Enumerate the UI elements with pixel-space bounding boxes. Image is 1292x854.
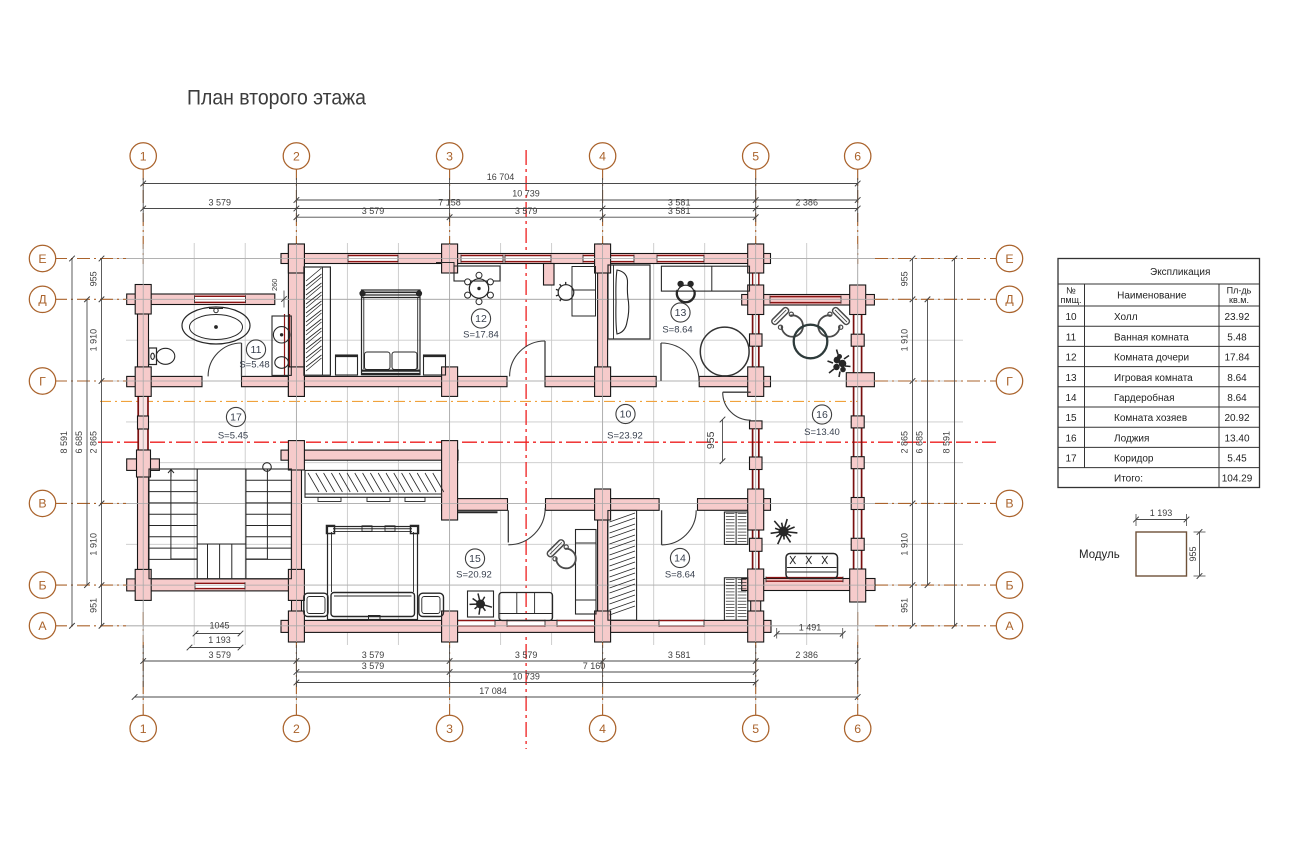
svg-text:2 865: 2 865 <box>89 431 99 454</box>
svg-text:S=17.84: S=17.84 <box>463 330 499 341</box>
svg-text:1 910: 1 910 <box>89 533 99 556</box>
svg-text:4: 4 <box>599 722 606 736</box>
svg-text:5: 5 <box>752 149 759 163</box>
svg-text:Наименование: Наименование <box>1117 291 1187 302</box>
svg-text:11: 11 <box>251 344 262 356</box>
svg-text:Экспликация: Экспликация <box>1150 267 1210 278</box>
svg-text:17: 17 <box>230 412 242 424</box>
svg-text:Е: Е <box>38 252 46 266</box>
svg-text:№: № <box>1066 286 1076 296</box>
svg-text:1 910: 1 910 <box>89 329 99 352</box>
svg-text:6 685: 6 685 <box>915 431 925 454</box>
svg-text:S=5.45: S=5.45 <box>218 431 248 442</box>
svg-text:План второго этажа: План второго этажа <box>187 86 366 110</box>
svg-text:Комната дочери: Комната дочери <box>1114 353 1189 364</box>
svg-text:8.64: 8.64 <box>1227 393 1247 404</box>
svg-text:2 386: 2 386 <box>795 197 818 207</box>
svg-text:S=8.64: S=8.64 <box>665 570 695 581</box>
svg-text:1: 1 <box>140 149 147 163</box>
svg-text:10: 10 <box>1065 312 1077 323</box>
svg-text:Д: Д <box>1005 293 1014 307</box>
svg-text:3 581: 3 581 <box>668 206 691 216</box>
svg-text:3 579: 3 579 <box>362 661 385 671</box>
svg-text:Б: Б <box>1005 578 1013 592</box>
svg-text:S=23.92: S=23.92 <box>607 431 643 442</box>
svg-text:23.92: 23.92 <box>1224 312 1249 323</box>
svg-text:Гардеробная: Гардеробная <box>1114 392 1175 404</box>
svg-text:Коридор: Коридор <box>1114 454 1154 465</box>
svg-text:А: А <box>1005 619 1014 633</box>
svg-text:20.92: 20.92 <box>1224 413 1249 424</box>
svg-text:1045: 1045 <box>209 621 229 631</box>
svg-text:15: 15 <box>469 553 481 565</box>
svg-text:16: 16 <box>1065 433 1077 444</box>
svg-text:2 865: 2 865 <box>900 431 910 454</box>
svg-text:10 739: 10 739 <box>512 671 540 681</box>
svg-text:Ванная комната: Ванная комната <box>1114 332 1189 343</box>
svg-text:Лоджия: Лоджия <box>1114 433 1149 444</box>
svg-text:1: 1 <box>140 722 147 736</box>
svg-text:14: 14 <box>1065 393 1077 404</box>
svg-text:Г: Г <box>1006 374 1013 388</box>
svg-text:2 386: 2 386 <box>795 650 818 660</box>
svg-text:13.40: 13.40 <box>1224 433 1249 444</box>
svg-text:5.45: 5.45 <box>1227 454 1247 465</box>
svg-text:1 910: 1 910 <box>900 329 910 352</box>
svg-text:2: 2 <box>293 149 300 163</box>
svg-text:А: А <box>38 619 47 633</box>
svg-text:3 579: 3 579 <box>362 650 385 660</box>
svg-text:3 579: 3 579 <box>362 206 385 216</box>
svg-text:8.64: 8.64 <box>1227 373 1247 384</box>
svg-text:16: 16 <box>816 409 828 421</box>
svg-text:12: 12 <box>1065 353 1077 364</box>
svg-text:Комната хозяев: Комната хозяев <box>1114 413 1187 424</box>
svg-text:6: 6 <box>854 722 861 736</box>
svg-text:Г: Г <box>39 374 46 388</box>
svg-text:В: В <box>38 497 46 511</box>
svg-text:Пл-дь: Пл-дь <box>1227 286 1252 296</box>
svg-text:Холл: Холл <box>1114 312 1138 323</box>
svg-text:S=8.64: S=8.64 <box>662 325 692 336</box>
svg-text:13: 13 <box>1065 373 1077 384</box>
svg-text:3: 3 <box>446 722 453 736</box>
svg-text:4: 4 <box>599 149 606 163</box>
svg-text:12: 12 <box>475 313 487 325</box>
svg-text:1 910: 1 910 <box>900 533 910 556</box>
svg-text:951: 951 <box>89 598 99 613</box>
svg-text:3 579: 3 579 <box>209 197 232 207</box>
svg-text:Модуль: Модуль <box>1079 549 1120 561</box>
svg-text:11: 11 <box>1066 332 1077 343</box>
svg-text:10 739: 10 739 <box>512 189 540 199</box>
svg-text:3 579: 3 579 <box>515 650 538 660</box>
svg-text:955: 955 <box>900 271 910 286</box>
svg-text:Игровая комната: Игровая комната <box>1114 373 1193 384</box>
svg-text:955: 955 <box>1188 546 1198 561</box>
svg-text:7 160: 7 160 <box>583 661 606 671</box>
svg-text:Итого:: Итого: <box>1114 474 1143 485</box>
svg-text:5: 5 <box>752 722 759 736</box>
svg-text:В: В <box>1005 497 1013 511</box>
svg-text:Е: Е <box>1005 252 1013 266</box>
svg-text:17.84: 17.84 <box>1224 353 1249 364</box>
svg-text:1 193: 1 193 <box>208 635 231 645</box>
svg-text:955: 955 <box>705 431 717 449</box>
svg-text:кв.м.: кв.м. <box>1229 295 1249 305</box>
svg-text:S=20.92: S=20.92 <box>456 570 492 581</box>
svg-text:260: 260 <box>270 279 279 292</box>
svg-text:S=5.48: S=5.48 <box>239 360 269 371</box>
svg-text:8 591: 8 591 <box>942 431 952 454</box>
svg-text:15: 15 <box>1065 413 1077 424</box>
svg-text:955: 955 <box>89 271 99 286</box>
svg-text:3: 3 <box>446 149 453 163</box>
svg-text:13: 13 <box>675 307 687 319</box>
svg-text:1 193: 1 193 <box>1150 508 1173 518</box>
svg-text:17: 17 <box>1065 454 1077 465</box>
svg-text:6: 6 <box>854 149 861 163</box>
svg-text:1 491: 1 491 <box>799 622 822 632</box>
svg-text:104.29: 104.29 <box>1222 474 1253 485</box>
svg-text:3 579: 3 579 <box>515 206 538 216</box>
svg-text:16 704: 16 704 <box>487 172 515 182</box>
svg-text:10: 10 <box>620 409 632 421</box>
svg-text:2: 2 <box>293 722 300 736</box>
svg-text:6 685: 6 685 <box>74 431 84 454</box>
svg-text:Д: Д <box>38 293 47 307</box>
svg-text:3 579: 3 579 <box>209 650 232 660</box>
svg-text:Б: Б <box>38 578 46 592</box>
svg-text:5.48: 5.48 <box>1227 332 1247 343</box>
svg-text:951: 951 <box>900 598 910 613</box>
svg-text:14: 14 <box>674 553 686 565</box>
svg-text:3 581: 3 581 <box>668 650 691 660</box>
svg-text:S=13.40: S=13.40 <box>804 427 840 438</box>
svg-text:8 591: 8 591 <box>59 431 69 454</box>
svg-text:17 084: 17 084 <box>479 686 507 696</box>
svg-text:пмщ.: пмщ. <box>1061 295 1082 305</box>
